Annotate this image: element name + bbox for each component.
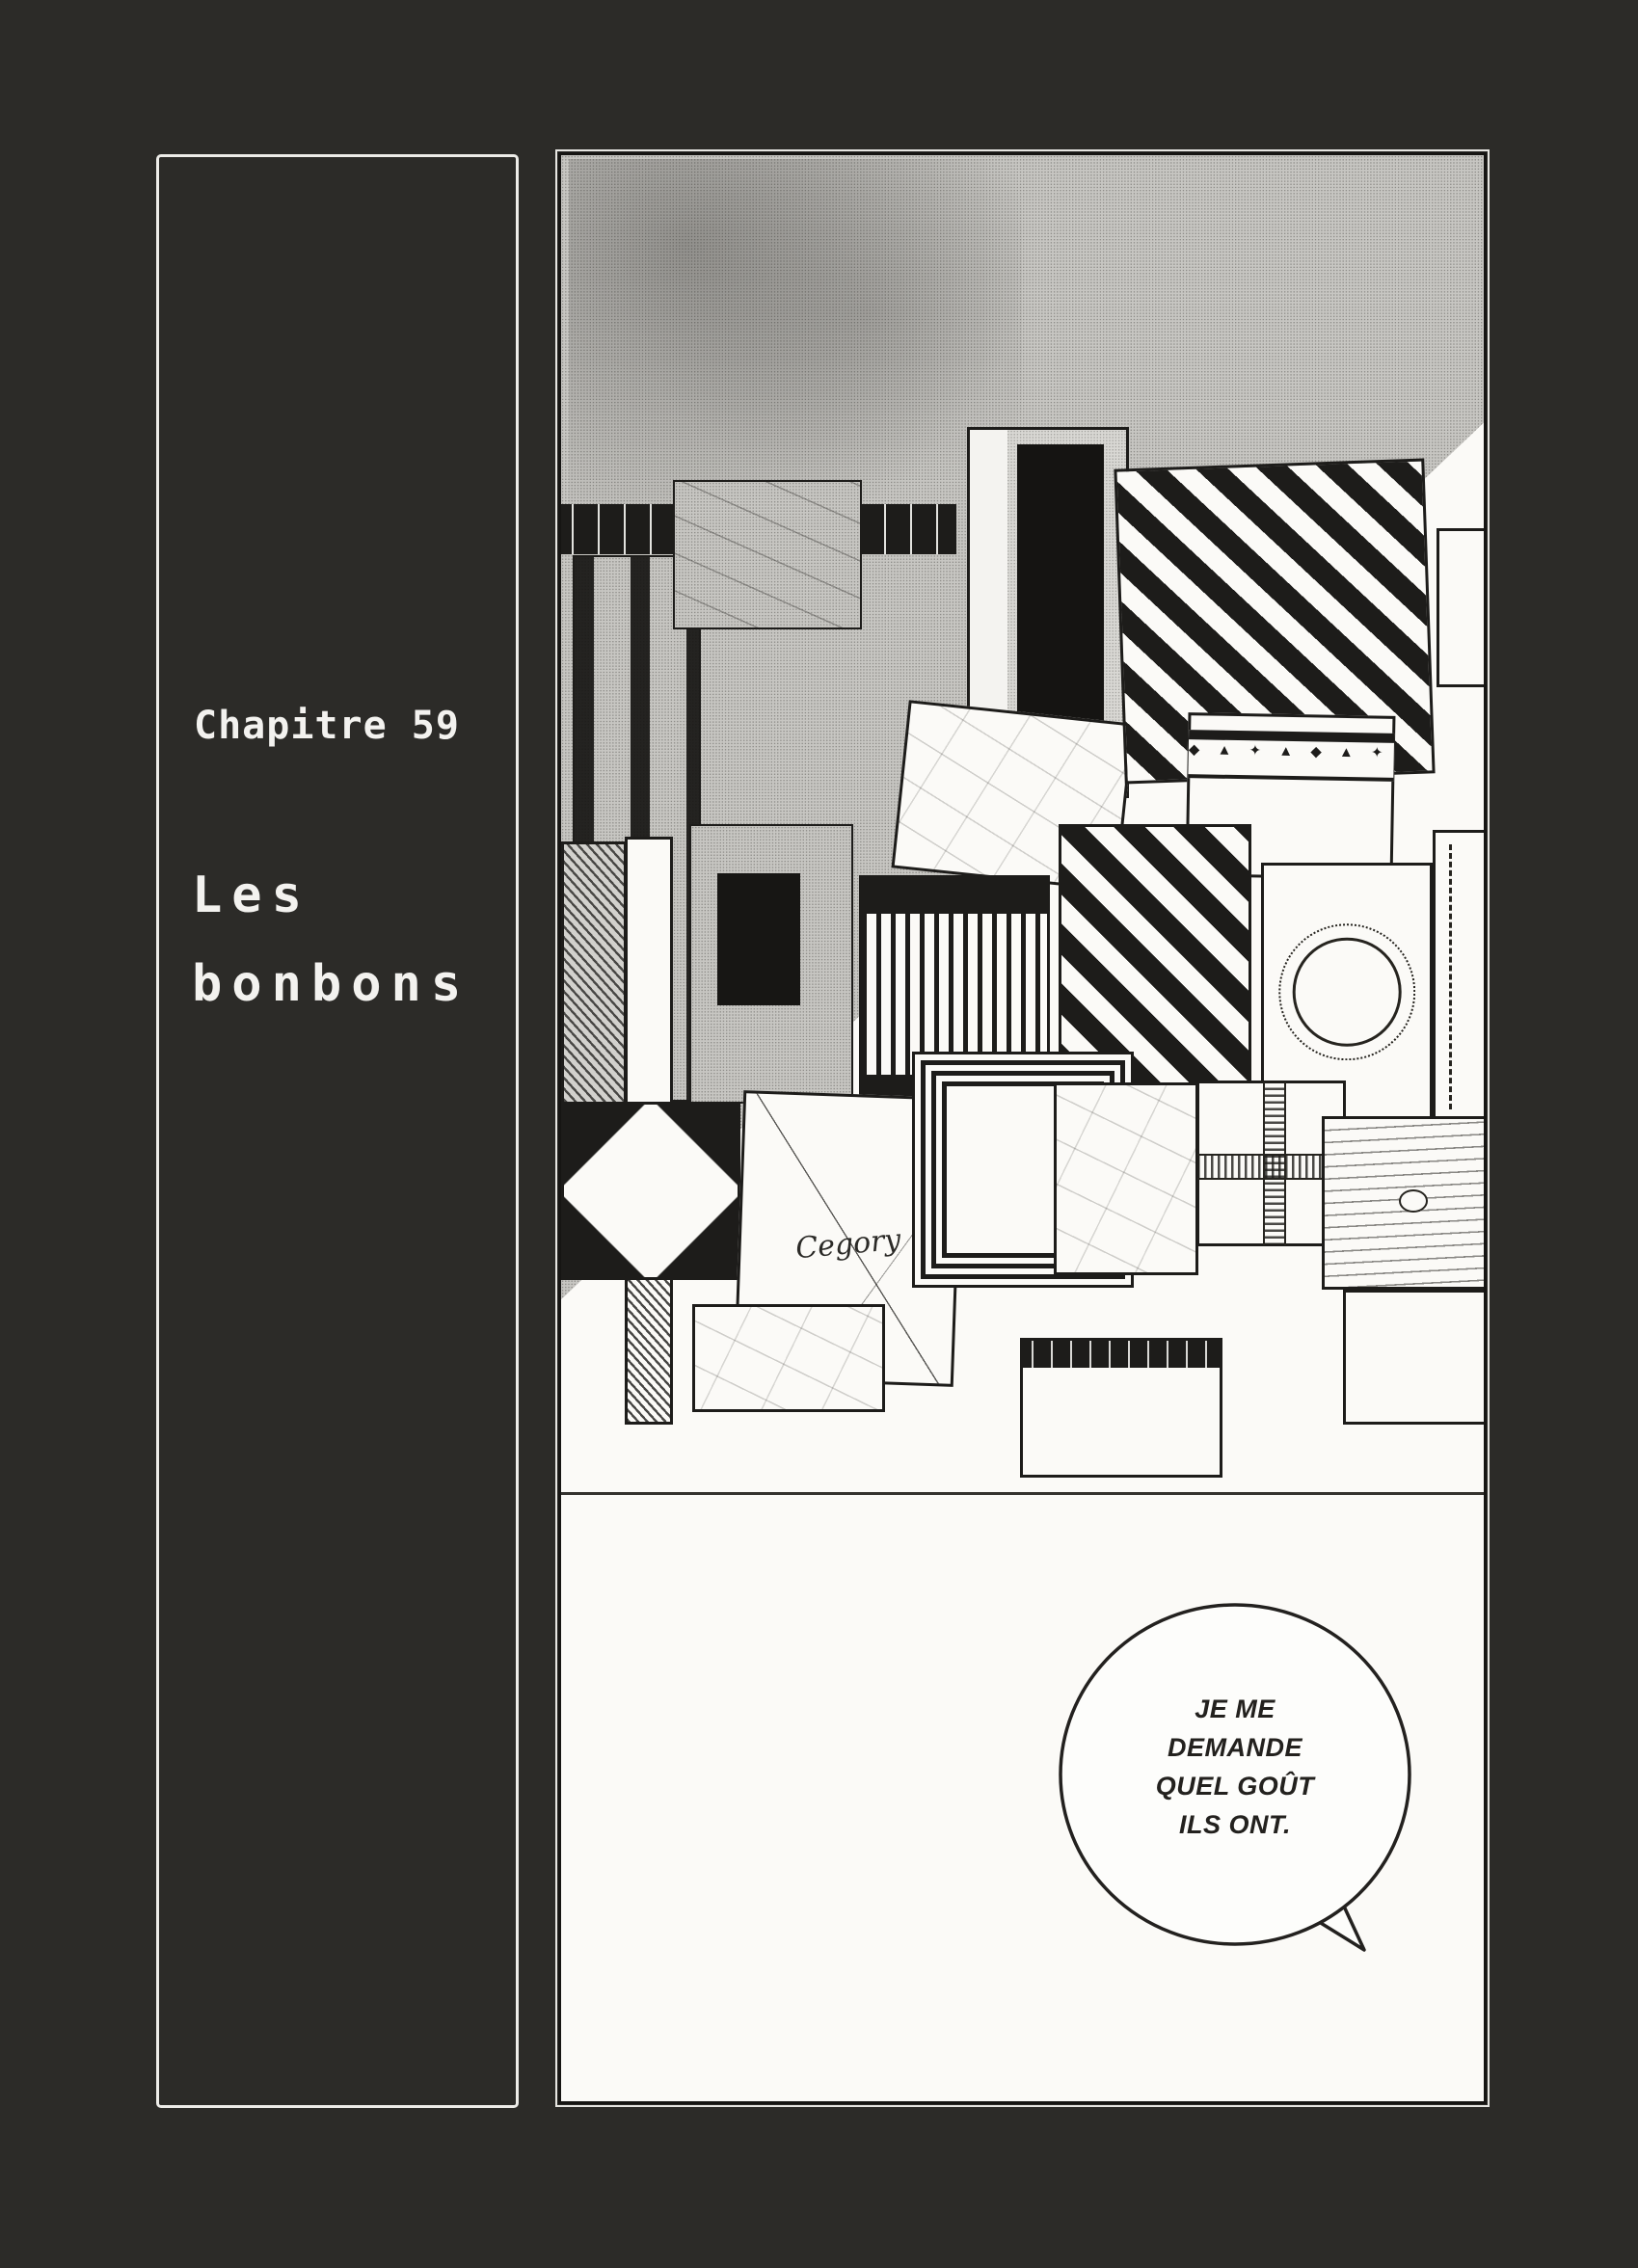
manga-page: Chapitre 59 Les bonbons ◆ ▲ ✦ ▲ ◆ ▲ ✦ ▲ … <box>0 0 1638 2268</box>
bubble-line: DEMANDE <box>1110 1728 1360 1767</box>
chapter-title-line-1: Les <box>192 870 311 921</box>
bubble-line: JE ME <box>1110 1690 1360 1728</box>
chapter-number-label: Chapitre 59 <box>194 704 460 748</box>
chapter-title-line-2: bonbons <box>192 959 470 1009</box>
manga-panel: ◆ ▲ ✦ ▲ ◆ ▲ ✦ ▲ ◆Cegory JE ME DEMANDE QU… <box>558 152 1487 2104</box>
chapter-title-box: Chapitre 59 Les bonbons <box>156 154 519 2108</box>
bubble-line: QUEL GOÛT <box>1110 1767 1360 1805</box>
bubble-line: ILS ONT. <box>1110 1805 1360 1844</box>
speech-bubble-text: JE ME DEMANDE QUEL GOÛT ILS ONT. <box>1110 1690 1360 1844</box>
